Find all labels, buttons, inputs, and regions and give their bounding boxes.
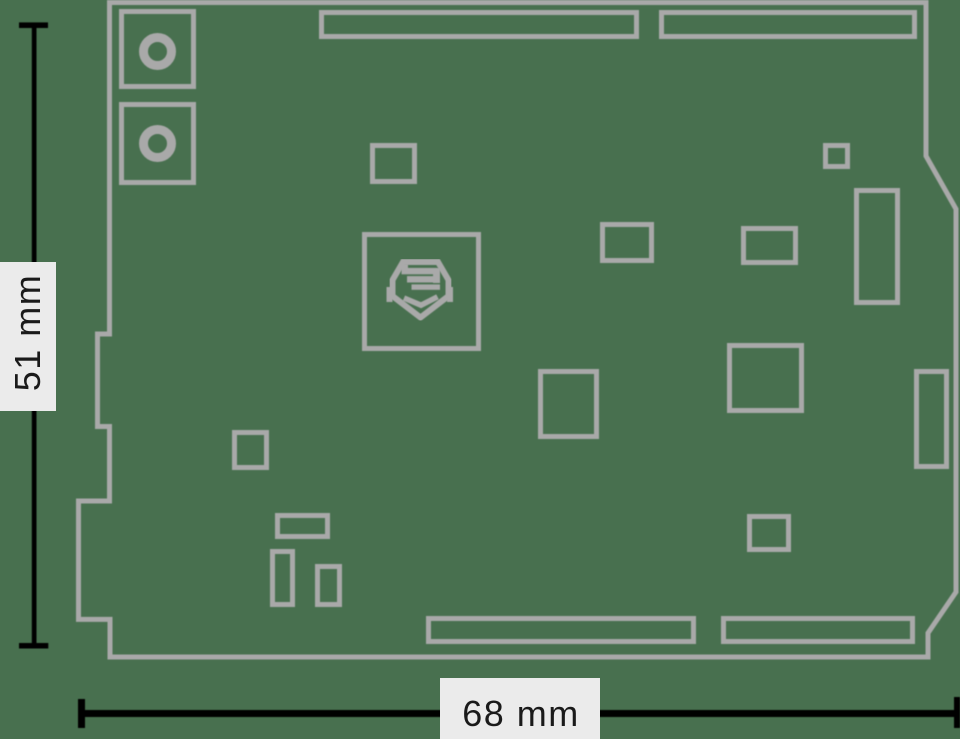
svg-text:68 mm: 68 mm [462, 693, 580, 734]
svg-text:51 mm: 51 mm [7, 274, 48, 392]
